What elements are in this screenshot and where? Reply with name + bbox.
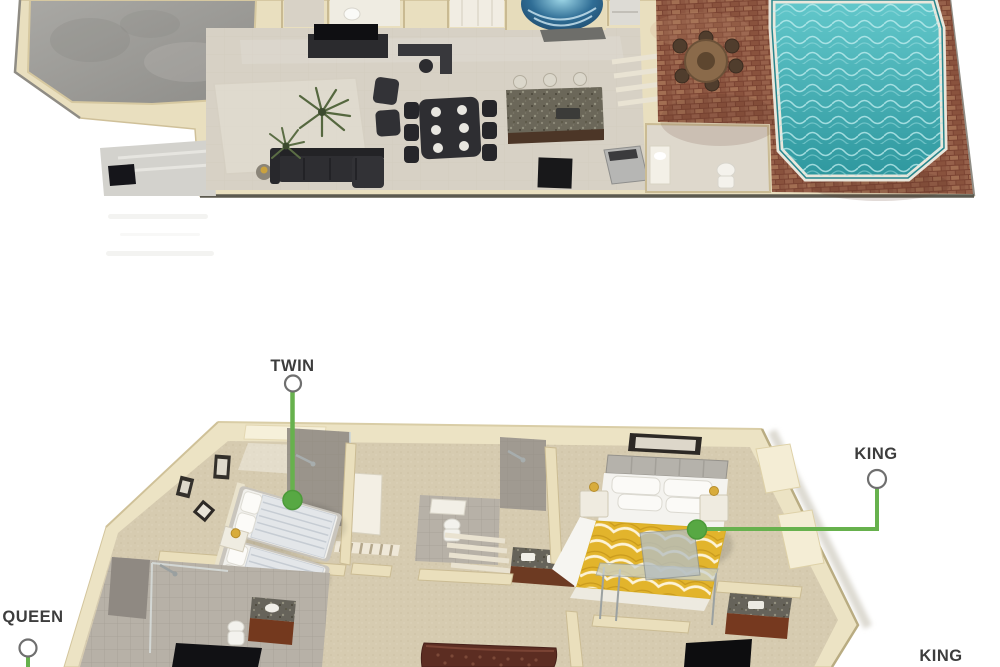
swimming-pool xyxy=(772,0,944,178)
bath-vanity xyxy=(650,146,670,184)
table-lamp xyxy=(710,487,719,496)
twin-callout-label: TWIN xyxy=(270,357,314,375)
side-table-lamp xyxy=(256,164,272,180)
linen-cabinet xyxy=(350,473,382,535)
built-in-cabinets xyxy=(450,0,504,27)
hearth xyxy=(537,157,572,188)
ensuite-vanity xyxy=(725,593,792,639)
island-sink xyxy=(556,108,580,119)
armchair xyxy=(372,76,399,105)
floorplan-page: TWIN KING QUEEN KING xyxy=(0,0,1000,667)
toilet xyxy=(717,163,735,177)
faint-watermark-smudge xyxy=(120,233,200,236)
refrigerator xyxy=(610,0,640,25)
bbq-grill xyxy=(604,146,648,184)
vanity-mirror xyxy=(640,529,700,580)
twin-bathroom xyxy=(80,557,330,667)
tv-screen xyxy=(684,639,752,667)
dining-table-set xyxy=(404,96,497,163)
bath-sink xyxy=(430,499,466,515)
entry-hall xyxy=(284,0,324,27)
faint-watermark-smudge xyxy=(106,251,214,256)
bar-stool xyxy=(544,74,557,87)
flat-screen-tv xyxy=(314,24,378,40)
bedroom-level-floorplan xyxy=(0,415,1000,667)
bar-stool xyxy=(514,76,527,89)
shower-tile-wall xyxy=(108,557,150,619)
table-lamp xyxy=(590,483,599,492)
armchair xyxy=(375,109,401,137)
door-mat xyxy=(108,164,136,186)
sofa xyxy=(270,148,384,188)
powder-room xyxy=(330,0,400,26)
main-level-floorplan xyxy=(0,0,1000,225)
tv-console xyxy=(308,24,388,58)
bar-stool xyxy=(574,73,587,86)
twin-callout-circle xyxy=(285,376,301,392)
front-entry-steps xyxy=(100,140,216,196)
